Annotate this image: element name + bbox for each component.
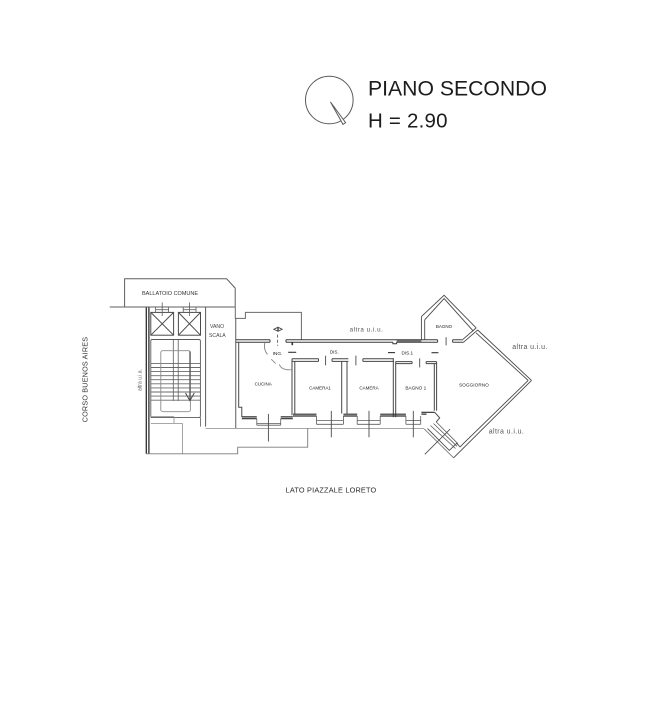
- svg-text:H = 2.90: H = 2.90: [368, 110, 448, 133]
- svg-text:PIANO SECONDO: PIANO SECONDO: [368, 78, 547, 101]
- svg-text:LATO PIAZZALE LORETO: LATO PIAZZALE LORETO: [286, 486, 377, 495]
- svg-text:BAGNO 1: BAGNO 1: [405, 386, 426, 391]
- svg-text:altra u.i.u.: altra u.i.u.: [489, 428, 525, 435]
- svg-text:CORSO BUENOS AIRES: CORSO BUENOS AIRES: [81, 337, 90, 422]
- svg-text:CAMERA: CAMERA: [359, 386, 378, 391]
- svg-text:DIS.: DIS.: [330, 350, 339, 355]
- svg-text:CAMERA1: CAMERA1: [309, 386, 331, 391]
- svg-text:SOGGIORNO: SOGGIORNO: [459, 383, 489, 388]
- svg-text:CUCINA: CUCINA: [255, 381, 272, 386]
- svg-text:VANO: VANO: [210, 324, 224, 330]
- svg-text:altra u.i.u.: altra u.i.u.: [350, 327, 384, 334]
- svg-text:DIS.1: DIS.1: [402, 350, 414, 355]
- svg-text:SCALA: SCALA: [209, 333, 226, 339]
- svg-text:BAGNO: BAGNO: [436, 324, 453, 329]
- svg-text:altra u.i.a.: altra u.i.a.: [138, 369, 144, 391]
- svg-text:ING.: ING.: [273, 351, 283, 357]
- svg-text:BALLATOIO COMUNE: BALLATOIO COMUNE: [142, 291, 198, 297]
- svg-text:altra u.i.u.: altra u.i.u.: [512, 344, 548, 351]
